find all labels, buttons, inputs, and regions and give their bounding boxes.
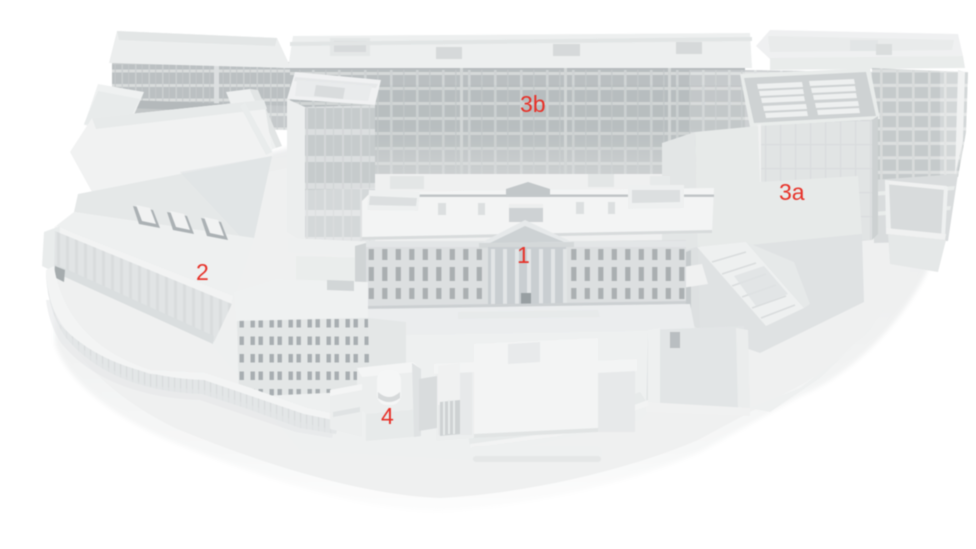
svg-text:1: 1 (517, 242, 530, 268)
svg-text:3b: 3b (520, 91, 546, 117)
svg-text:4: 4 (381, 403, 394, 429)
svg-text:3a: 3a (779, 179, 805, 205)
svg-text:2: 2 (196, 259, 209, 285)
